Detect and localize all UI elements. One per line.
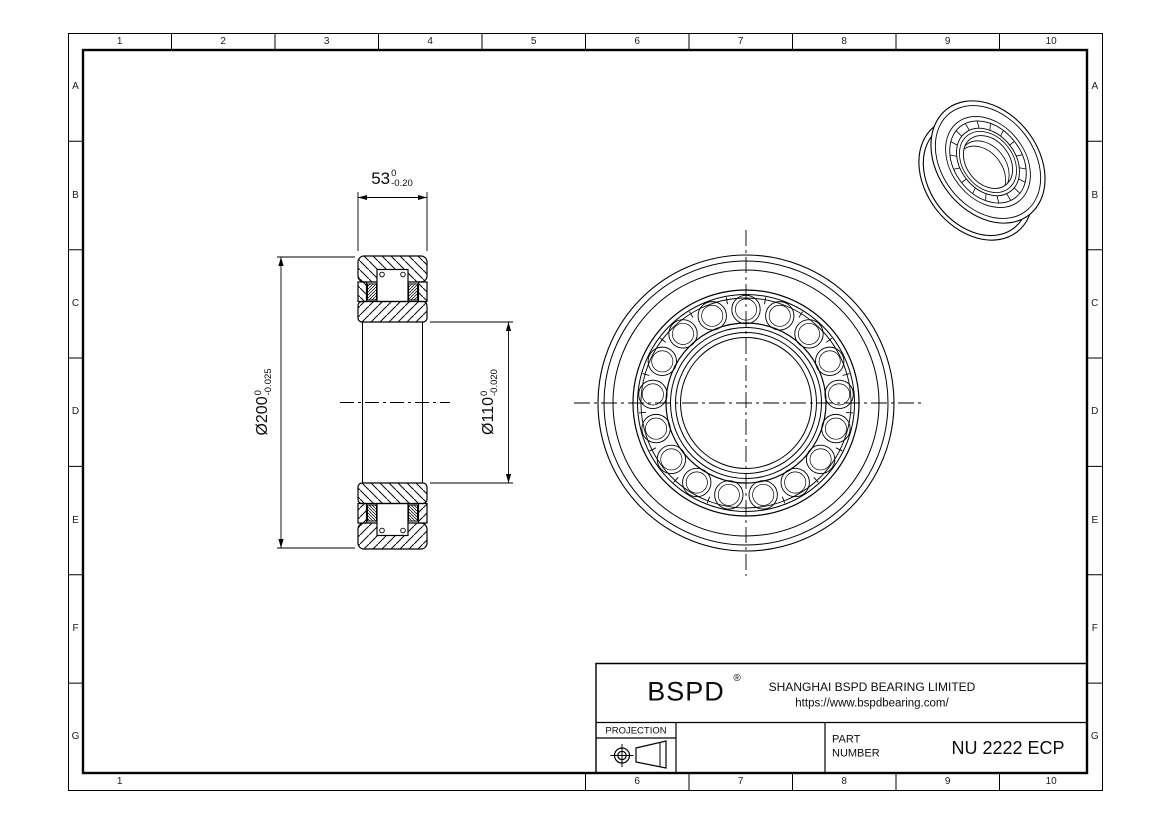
grid-row-label: E — [72, 516, 79, 526]
company-name: SHANGHAI BSPD BEARING LIMITED — [677, 681, 1067, 693]
grid-col-label: 7 — [738, 37, 744, 47]
grid-col-label: 7 — [738, 777, 744, 787]
grid-row-label: B — [72, 191, 79, 201]
grid-row-label: D — [72, 407, 79, 417]
front-view-centerlines — [574, 230, 922, 576]
grid-col-label: 8 — [841, 37, 847, 47]
grid-col-label: 1 — [117, 777, 123, 787]
projection-symbol-icon — [611, 741, 667, 768]
projection-label: PROJECTION — [605, 726, 666, 736]
grid-row-label: C — [1091, 299, 1098, 309]
grid-col-label: 6 — [634, 37, 640, 47]
grid-row-label: A — [1091, 82, 1098, 92]
grid-row-label: G — [1091, 732, 1099, 742]
front-view — [574, 230, 922, 576]
grid-col-label: 3 — [324, 37, 330, 47]
grid-col-label: 2 — [220, 37, 226, 47]
grid-row-label: F — [72, 624, 78, 634]
grid-col-label: 4 — [427, 37, 433, 47]
grid-col-label: 9 — [945, 777, 951, 787]
grid-row-label: G — [72, 732, 80, 742]
width-dimension: 53 0 -0.20 — [371, 169, 413, 187]
bore-diameter-value: Ø110 — [481, 397, 497, 435]
width-value: 53 — [371, 170, 390, 187]
grid-col-label: 1 — [117, 37, 123, 47]
grid-col-label: 10 — [1046, 37, 1057, 47]
part-label-line1: PART — [832, 735, 860, 746]
grid-row-label: F — [1092, 624, 1098, 634]
width-tol-lower: -0.20 — [391, 179, 413, 189]
grid-row-label: C — [72, 299, 79, 309]
outer-diameter-dimension: Ø200 0 -0.025 — [254, 368, 272, 435]
outer-diameter-tol-lower: -0.025 — [264, 368, 274, 395]
part-label-line2: NUMBER — [832, 749, 880, 760]
grid-col-label: 9 — [945, 37, 951, 47]
isometric-view — [892, 78, 1073, 262]
bore-diameter-tol-lower: -0.020 — [490, 369, 500, 396]
grid-row-label: D — [1091, 407, 1098, 417]
engineering-drawing-sheet: 1 2 3 4 5 6 7 8 9 10 1 6 7 8 9 10 A B C … — [0, 0, 1169, 826]
bore-diameter-dimension: Ø110 0 -0.020 — [480, 369, 498, 435]
company-website: https://www.bspdbearing.com/ — [677, 698, 1067, 710]
outer-diameter-value: Ø200 — [255, 396, 271, 435]
part-number-value: NU 2222 ECP — [951, 739, 1064, 757]
grid-col-label: 5 — [531, 37, 537, 47]
grid-col-label: 8 — [841, 777, 847, 787]
grid-row-label: E — [1091, 516, 1098, 526]
grid-row-label: B — [1091, 191, 1098, 201]
grid-col-label: 10 — [1046, 777, 1057, 787]
cross-section-view — [340, 256, 450, 549]
grid-col-label: 6 — [634, 777, 640, 787]
grid-row-label: A — [72, 82, 79, 92]
